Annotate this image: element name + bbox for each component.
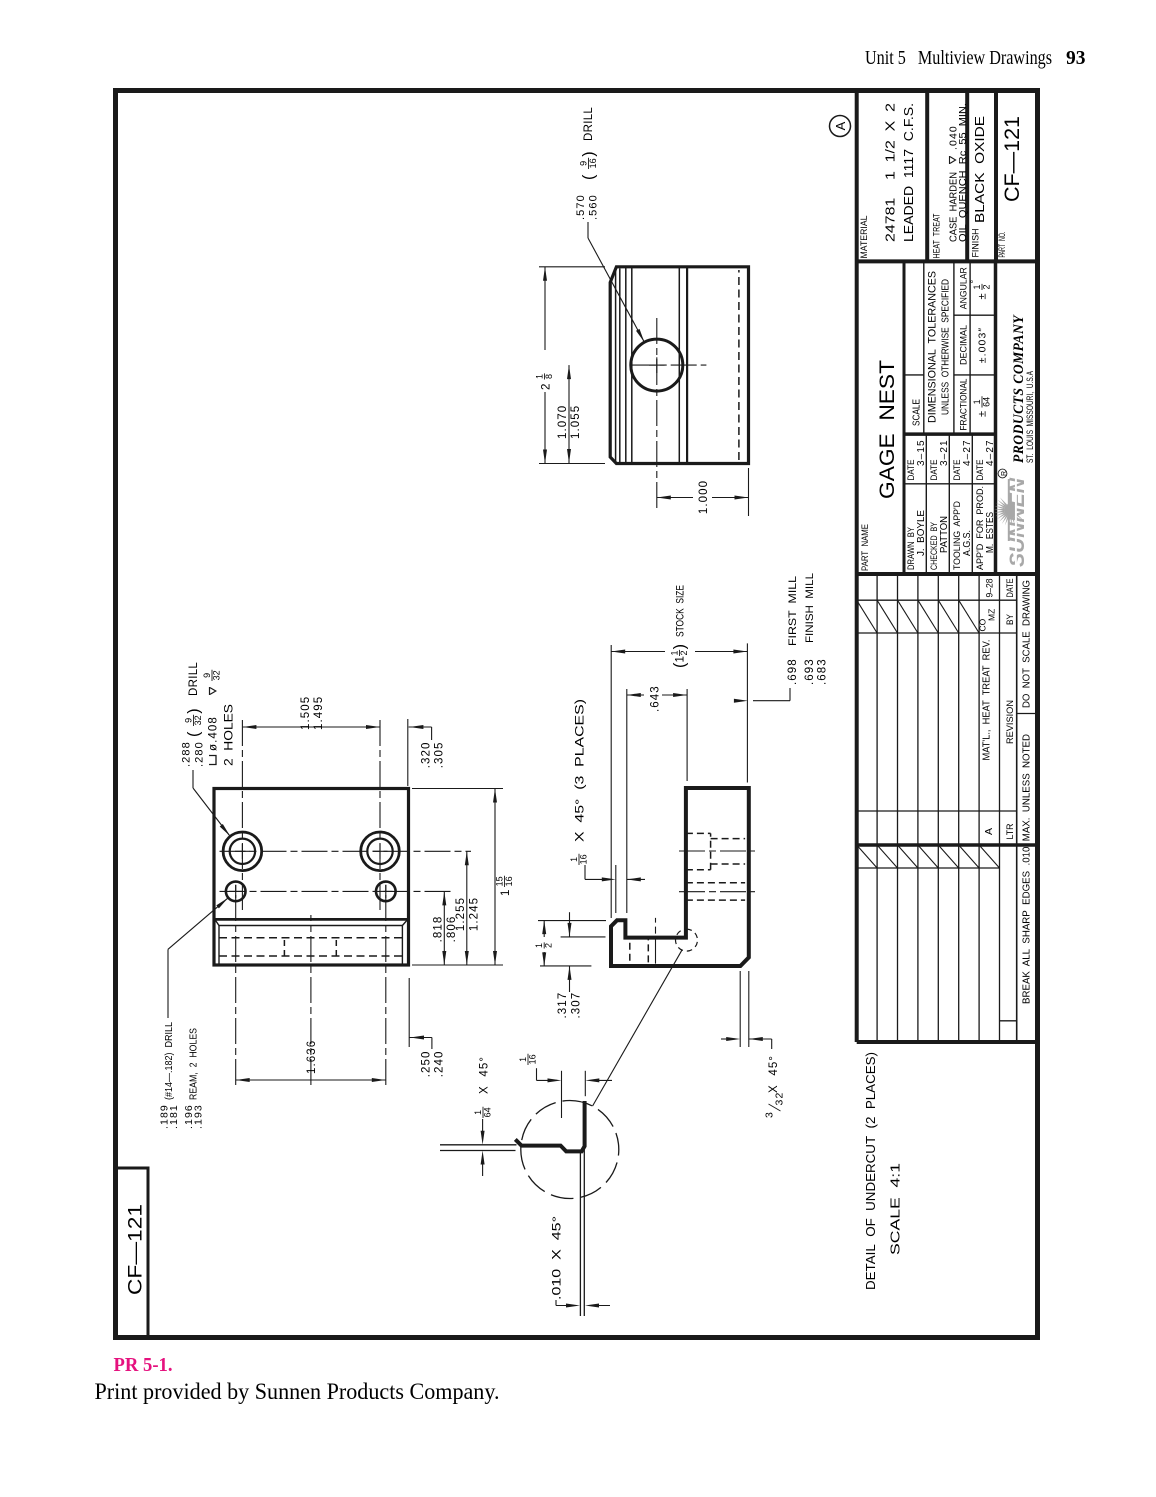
svg-text:93: 93 bbox=[1066, 48, 1086, 69]
svg-text:(: ( bbox=[186, 731, 203, 737]
svg-text:°: ° bbox=[969, 279, 979, 283]
svg-text:16: 16 bbox=[588, 158, 598, 168]
svg-text:1.070: 1.070 bbox=[557, 405, 569, 439]
svg-text:(: ( bbox=[581, 174, 598, 180]
svg-text:2 HOLES: 2 HOLES bbox=[224, 704, 236, 766]
svg-text:.280: .280 bbox=[194, 741, 206, 767]
svg-text:PR 5-1.: PR 5-1. bbox=[114, 1354, 173, 1376]
svg-text:.288: .288 bbox=[181, 741, 193, 767]
svg-text:.240: .240 bbox=[434, 1051, 446, 1078]
svg-text:X 45°: X 45° bbox=[479, 1056, 491, 1094]
svg-text:1: 1 bbox=[500, 889, 512, 897]
svg-text:64: 64 bbox=[482, 1107, 492, 1117]
svg-text:UNLESS OTHERWISE SPECIFIED: UNLESS OTHERWISE SPECIFIED bbox=[941, 279, 952, 415]
svg-text:4–27: 4–27 bbox=[962, 439, 973, 466]
svg-text:FINISH: FINISH bbox=[971, 228, 982, 257]
svg-text:9: 9 bbox=[202, 673, 212, 678]
svg-text:2: 2 bbox=[981, 284, 991, 289]
svg-text:REAM, 2 HOLES: REAM, 2 HOLES bbox=[188, 1028, 200, 1100]
svg-text:1.255: 1.255 bbox=[455, 897, 467, 931]
svg-text:1: 1 bbox=[518, 1057, 528, 1062]
svg-text:BREAK ALL SHARP EDGES .010: BREAK ALL SHARP EDGES .010 MAX. UNLESS N… bbox=[1022, 734, 1033, 1004]
svg-text:DIMENSIONAL TOLERANCES: DIMENSIONAL TOLERANCES bbox=[927, 271, 939, 423]
svg-text:9: 9 bbox=[183, 718, 193, 723]
svg-text:.693: .693 bbox=[804, 658, 816, 685]
svg-text:DO NOT SCALE DRAWING: DO NOT SCALE DRAWING bbox=[1022, 580, 1033, 708]
svg-text:2: 2 bbox=[679, 650, 689, 655]
svg-text:32: 32 bbox=[211, 670, 221, 680]
svg-text:MZ: MZ bbox=[987, 609, 997, 621]
svg-text:16: 16 bbox=[504, 876, 514, 886]
svg-text:.818: .818 bbox=[433, 916, 445, 943]
svg-text:): ) bbox=[581, 151, 598, 156]
svg-text:2: 2 bbox=[541, 383, 553, 391]
svg-text:LTR: LTR bbox=[1005, 823, 1016, 839]
svg-text:.305: .305 bbox=[434, 742, 446, 769]
svg-text:(#14—.182) DRILL: (#14—.182) DRILL bbox=[163, 1022, 175, 1100]
svg-text:OIL QUENCH Rc 55 MIN.: OIL QUENCH Rc 55 MIN. bbox=[957, 103, 969, 242]
svg-text:1.055: 1.055 bbox=[570, 405, 582, 439]
svg-text:ANGULAR: ANGULAR bbox=[959, 267, 969, 309]
svg-text:SCALE: SCALE bbox=[911, 399, 923, 426]
svg-text:FINISH MILL: FINISH MILL bbox=[804, 573, 816, 643]
svg-text:9–28: 9–28 bbox=[985, 579, 996, 598]
svg-text:A.G.S.: A.G.S. bbox=[962, 530, 973, 556]
svg-text:.250: .250 bbox=[421, 1051, 433, 1078]
svg-text:1.636: 1.636 bbox=[306, 1040, 318, 1074]
svg-text:DECIMAL: DECIMAL bbox=[959, 325, 969, 365]
svg-text:R: R bbox=[1001, 471, 1008, 476]
svg-text:ø.408: ø.408 bbox=[208, 716, 220, 751]
svg-text:3–21: 3–21 bbox=[939, 439, 950, 466]
svg-text:.320: .320 bbox=[421, 742, 433, 769]
svg-text:CF—121: CF—121 bbox=[1000, 116, 1024, 202]
svg-text:1.000: 1.000 bbox=[698, 480, 710, 514]
svg-text:.307: .307 bbox=[571, 992, 583, 1019]
svg-text:±: ± bbox=[977, 410, 989, 417]
svg-text:STOCK SIZE: STOCK SIZE bbox=[675, 585, 687, 637]
svg-text:PART NAME: PART NAME bbox=[860, 524, 871, 571]
svg-text:Unit 5 Multiview Drawings: Unit 5 Multiview Drawings bbox=[865, 48, 1052, 69]
svg-text:LEADED 1117 C.F.S.: LEADED 1117 C.F.S. bbox=[902, 103, 916, 242]
svg-text:.181: .181 bbox=[168, 1104, 180, 1129]
svg-text:1.505: 1.505 bbox=[300, 696, 312, 730]
svg-text:1: 1 bbox=[669, 650, 679, 655]
svg-text:4–27: 4–27 bbox=[985, 439, 996, 466]
svg-text:3: 3 bbox=[764, 1111, 776, 1118]
svg-text:.643: .643 bbox=[650, 685, 662, 712]
svg-text:ST. LOUIS MISSOURI, U.S.A: ST. LOUIS MISSOURI, U.S.A bbox=[1025, 370, 1035, 463]
svg-text:8: 8 bbox=[544, 374, 554, 379]
svg-text:.193: .193 bbox=[193, 1104, 205, 1129]
svg-text:1: 1 bbox=[473, 1110, 483, 1115]
svg-text:FIRST MILL: FIRST MILL bbox=[787, 576, 799, 646]
svg-text:±.003″: ±.003″ bbox=[977, 327, 989, 364]
svg-text:A: A bbox=[983, 827, 995, 835]
svg-text:DRILL: DRILL bbox=[188, 662, 200, 696]
svg-text:15: 15 bbox=[494, 876, 504, 886]
svg-text:.683: .683 bbox=[817, 658, 829, 685]
svg-text:32: 32 bbox=[193, 715, 203, 725]
svg-text:1.495: 1.495 bbox=[313, 696, 325, 730]
svg-text:MATERIAL: MATERIAL bbox=[859, 216, 870, 259]
svg-text:64: 64 bbox=[981, 397, 991, 407]
svg-text:MAT'L., HEAT TREAT REV.: MAT'L., HEAT TREAT REV. bbox=[982, 640, 993, 761]
svg-text:X 45° (3 PLACES): X 45° (3 PLACES) bbox=[575, 699, 587, 842]
svg-text:PART NO.: PART NO. bbox=[997, 232, 1008, 258]
svg-text:M. ESTES: M. ESTES bbox=[985, 512, 996, 553]
svg-text:1: 1 bbox=[972, 399, 982, 404]
svg-text:1: 1 bbox=[534, 374, 544, 379]
svg-text:BLACK OXIDE: BLACK OXIDE bbox=[973, 116, 987, 223]
svg-text:9: 9 bbox=[578, 161, 588, 166]
svg-text:.010 X 45°: .010 X 45° bbox=[552, 1216, 564, 1300]
svg-text:BY: BY bbox=[1005, 613, 1016, 625]
svg-text:.570: .570 bbox=[575, 194, 587, 220]
svg-text:Print provided by Sunnen Produ: Print provided by Sunnen Products Compan… bbox=[95, 1379, 500, 1404]
svg-text:J. BOYLE: J. BOYLE bbox=[916, 510, 927, 556]
svg-text:.317: .317 bbox=[557, 992, 569, 1019]
svg-text:1.245: 1.245 bbox=[469, 897, 481, 931]
svg-text:A: A bbox=[833, 121, 848, 130]
svg-text:1: 1 bbox=[569, 857, 579, 862]
svg-text:DRILL: DRILL bbox=[583, 107, 595, 141]
svg-text:.560: .560 bbox=[588, 194, 600, 220]
svg-text:16: 16 bbox=[527, 1054, 537, 1064]
svg-text:DETAIL OF UNDERCUT (2 PLAC: DETAIL OF UNDERCUT (2 PLACES) bbox=[863, 1052, 878, 1290]
svg-text:1: 1 bbox=[534, 943, 544, 948]
svg-text:3–15: 3–15 bbox=[916, 439, 927, 466]
svg-text:PATTON: PATTON bbox=[939, 516, 950, 553]
svg-text:): ) bbox=[672, 644, 689, 649]
svg-text:1: 1 bbox=[972, 284, 982, 289]
svg-text:HEAT TREAT: HEAT TREAT bbox=[932, 213, 943, 258]
svg-text:X 45°: X 45° bbox=[768, 1055, 780, 1093]
svg-text:DATE: DATE bbox=[1005, 579, 1016, 598]
svg-text:CF—121: CF—121 bbox=[126, 1204, 147, 1295]
svg-text:GAGE NEST: GAGE NEST bbox=[875, 360, 899, 499]
svg-text:REVISION: REVISION bbox=[1005, 700, 1016, 744]
svg-text:±: ± bbox=[977, 292, 989, 299]
svg-text:SCALE 4:1: SCALE 4:1 bbox=[888, 1163, 903, 1255]
svg-text:16: 16 bbox=[578, 854, 588, 864]
svg-text:): ) bbox=[186, 708, 203, 713]
svg-text:FRACTIONAL: FRACTIONAL bbox=[959, 379, 969, 431]
svg-text:24781 1 1/2 X 2: 24781 1 1/2 X 2 bbox=[884, 103, 898, 242]
svg-text:2: 2 bbox=[544, 943, 554, 948]
svg-text:.698: .698 bbox=[787, 658, 799, 685]
